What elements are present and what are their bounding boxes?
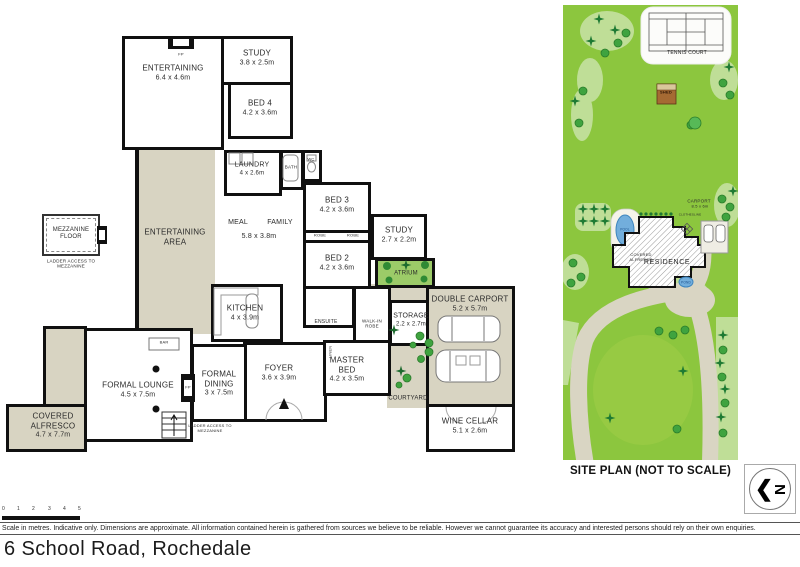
room-label-formal-dining: FORMAL DINING3 x 7.5m xyxy=(195,370,243,399)
site-label-shed: SHED xyxy=(660,91,672,96)
room-label-bed2: BED 24.2 x 3.6m xyxy=(320,254,355,273)
scale-tick-0: 0 xyxy=(2,506,5,512)
room-label-double-carport: DOUBLE CARPORT5.2 x 5.7m xyxy=(432,295,509,314)
compass-north-letter: N xyxy=(771,484,788,495)
scale-tick-5: 5 xyxy=(78,506,81,512)
site-label-clothesline: CLOTHESLINE xyxy=(679,213,702,217)
room-entertaining xyxy=(122,36,224,150)
site-dims-carport: 8.5 x 6m xyxy=(692,205,709,210)
note-ladder-access-2: LADDER ACCESS TO MEZZANINE xyxy=(185,424,235,434)
note-ladder-access-1: LADDER ACCESS TO MEZZANINE xyxy=(41,259,101,270)
site-label-tennis-court: TENNIS COURT xyxy=(667,50,707,56)
area-label-meal: MEAL xyxy=(228,219,248,227)
room-label-bed4: BED 44.2 x 3.6m xyxy=(243,99,278,118)
room-walk-in-robe xyxy=(353,286,391,344)
site-plan-title: SITE PLAN (NOT TO SCALE) xyxy=(563,465,738,477)
room-label-formal-lounge: FORMAL LOUNGE4.5 x 7.5m xyxy=(102,381,174,400)
scale-bar xyxy=(2,516,80,520)
area-label-courtyard: COURTYARD xyxy=(388,395,427,402)
room-bath xyxy=(280,150,304,190)
room-label-wine-cellar: WINE CELLAR5.1 x 2.6m xyxy=(442,417,498,436)
room-label-kitchen: KITCHEN4 x 3.9m xyxy=(227,304,264,323)
linen-label: LINEN xyxy=(329,346,334,359)
area-label-family: FAMILY xyxy=(267,219,293,227)
room-label-mezzanine: MEZZANINE FLOOR xyxy=(49,227,93,241)
site-plan xyxy=(563,5,738,460)
room-label-covered-alfresco: COVERED ALFRESCO4.7 x 7.7m xyxy=(25,412,81,441)
scale-tick-2: 2 xyxy=(32,506,35,512)
site-label-pond: POND xyxy=(681,281,691,285)
site-label-pool: POOL xyxy=(620,228,630,232)
bar-label: BAR xyxy=(160,341,169,346)
room-label-foyer: FOYER3.6 x 3.9m xyxy=(262,364,297,383)
area-label-atrium: ATRIUM xyxy=(394,270,418,277)
area-label-entertaining-area: ENTERTAINING AREA xyxy=(144,227,206,246)
room-label-master-bed: MASTER BED4.2 x 3.5m xyxy=(324,356,370,385)
robe-label-2: ROBE xyxy=(347,234,359,239)
fireplace-label-lounge: FP xyxy=(185,386,191,391)
room-label-storage: STORAGE2.2 x 2.7m xyxy=(393,313,429,330)
room-label-bed3: BED 34.2 x 3.6m xyxy=(320,196,355,215)
room-label-study-top: STUDY3.8 x 2.5m xyxy=(240,49,275,68)
site-label-covered-alfresco: COVERED ALFRESCO xyxy=(628,253,654,263)
room-label-bath: BATH xyxy=(285,164,297,169)
property-address: 6 School Road, Rochedale xyxy=(4,538,252,561)
area-dims-meal-family: 5.8 x 3.8m xyxy=(242,233,277,241)
room-wc xyxy=(302,150,322,182)
room-label-wc: WC xyxy=(307,158,314,163)
room-label-entertaining: ENTERTAINING6.4 x 4.6m xyxy=(142,64,203,83)
room-label-ensuite: ENSUITE xyxy=(314,319,337,325)
room-label-study-mid: STUDY2.7 x 2.2m xyxy=(382,226,417,245)
compass: ❮ N xyxy=(744,464,796,514)
room-label-laundry: LAUNDRY4 x 2.6m xyxy=(235,162,270,179)
compass-ring: ❮ N xyxy=(749,468,791,510)
scale-tick-3: 3 xyxy=(48,506,51,512)
floor-plan-page: ENTERTAINING6.4 x 4.6m FP STUDY3.8 x 2.5… xyxy=(0,0,800,567)
fireplace-label-top: FP xyxy=(178,53,184,58)
scale-tick-1: 1 xyxy=(17,506,20,512)
robe-label-1: ROBE xyxy=(314,234,326,239)
disclaimer-text: Scale in metres. Indicative only. Dimens… xyxy=(0,522,800,535)
scale-tick-4: 4 xyxy=(63,506,66,512)
room-label-walk-in-robe: WALK-IN ROBE xyxy=(357,319,387,330)
